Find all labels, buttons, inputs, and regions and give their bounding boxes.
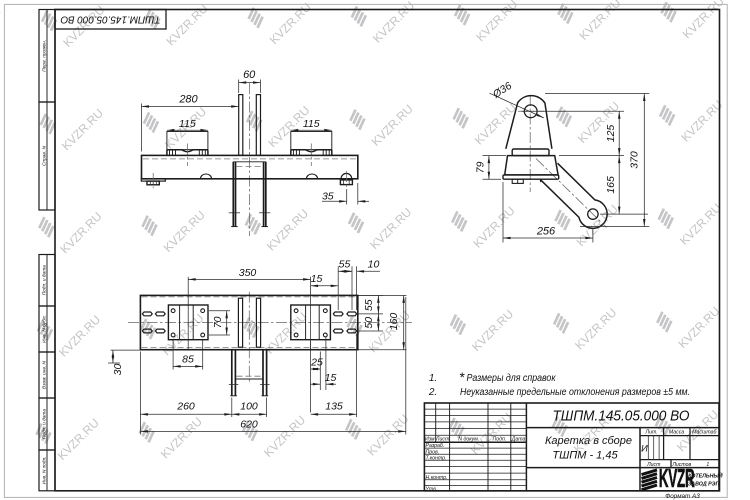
svg-text:KVZR.RU: KVZR.RU <box>0 107 3 154</box>
svg-text:100: 100 <box>240 401 258 413</box>
svg-text:256: 256 <box>536 225 556 237</box>
svg-text:85: 85 <box>182 354 194 366</box>
svg-text:115: 115 <box>179 118 196 130</box>
svg-text:50: 50 <box>363 317 375 329</box>
svg-text:KVZR.RU: KVZR.RU <box>0 4 4 51</box>
svg-text:KVZR.RU: KVZR.RU <box>370 0 417 46</box>
svg-text:260: 260 <box>176 401 195 413</box>
svg-text:KVZR.RU: KVZR.RU <box>264 206 311 253</box>
svg-text:KVZR.RU: KVZR.RU <box>56 312 103 359</box>
svg-text:370: 370 <box>629 151 641 169</box>
svg-text:KVZR.RU: KVZR.RU <box>0 211 1 258</box>
svg-text:ТШПМ.145.05.000 ВО: ТШПМ.145.05.000 ВО <box>60 14 160 25</box>
svg-text:KVZR.RU: KVZR.RU <box>473 0 520 44</box>
svg-text:15: 15 <box>325 372 337 384</box>
svg-text:15: 15 <box>311 273 323 285</box>
svg-text:Лист: Лист <box>435 437 450 443</box>
svg-text:Перв. примен.: Перв. примен. <box>41 40 47 72</box>
svg-text:350: 350 <box>239 267 257 279</box>
svg-text:ЗАВОД РЭП: ЗАВОД РЭП <box>688 481 720 487</box>
svg-text:Формат А3: Формат А3 <box>665 493 700 500</box>
svg-text:KVZR.RU: KVZR.RU <box>572 305 619 352</box>
svg-text:Инв. N подл.: Инв. N подл. <box>41 456 47 484</box>
svg-text:25: 25 <box>310 356 323 368</box>
svg-text:165: 165 <box>605 176 617 194</box>
svg-text:1: 1 <box>706 462 709 468</box>
svg-text:KVZR.RU: KVZR.RU <box>261 413 308 460</box>
svg-text:Утв.: Утв. <box>426 486 438 492</box>
svg-text:55: 55 <box>363 299 375 311</box>
svg-text:Неуказанные предельные отклоне: Неуказанные предельные отклонения размер… <box>460 387 690 398</box>
svg-text:KVZR.RU: KVZR.RU <box>161 208 208 255</box>
svg-text:KVZR.RU: KVZR.RU <box>267 0 314 47</box>
svg-text:Лит.: Лит. <box>645 430 658 436</box>
svg-text:KVZR.RU: KVZR.RU <box>469 307 516 354</box>
svg-text:1.: 1. <box>429 373 437 384</box>
svg-text:Размеры для справок: Размеры для справок <box>467 373 557 384</box>
svg-text:160: 160 <box>388 313 400 331</box>
svg-text:KVZR.RU: KVZR.RU <box>676 304 723 351</box>
svg-text:KVZR.RU: KVZR.RU <box>159 311 206 358</box>
svg-text:Взам. инв. N: Взам. инв. N <box>41 361 47 389</box>
svg-text:KVZR.RU: KVZR.RU <box>164 1 211 48</box>
svg-text:Н.контр.: Н.контр. <box>426 475 448 481</box>
svg-text:115: 115 <box>303 118 320 130</box>
svg-text:60: 60 <box>243 69 256 81</box>
svg-text:KVZR.RU: KVZR.RU <box>677 201 724 248</box>
svg-text:KVZR.RU: KVZR.RU <box>678 97 725 144</box>
svg-text:55: 55 <box>339 259 351 271</box>
svg-text:Подп.: Подп. <box>492 437 506 443</box>
svg-text:Изм: Изм <box>425 437 435 443</box>
svg-text:Масштаб: Масштаб <box>692 430 717 436</box>
svg-text:Подп. и дата: Подп. и дата <box>41 265 47 295</box>
svg-text:Разраб.: Разраб. <box>426 443 445 449</box>
svg-text:Подп. и дата: Подп. и дата <box>41 409 47 439</box>
svg-text:Инв. N дубл.: Инв. N дубл. <box>41 315 47 343</box>
svg-text:KVZR.RU: KVZR.RU <box>577 0 624 43</box>
svg-text:125: 125 <box>605 125 617 143</box>
svg-text:10: 10 <box>368 259 380 271</box>
svg-text:КОТЕЛЬНЫЙ: КОТЕЛЬНЫЙ <box>688 472 723 480</box>
svg-text:Ø36: Ø36 <box>490 80 514 102</box>
svg-text:KVZR.RU: KVZR.RU <box>470 204 517 251</box>
svg-text:KVZR.RU: KVZR.RU <box>369 102 416 149</box>
svg-text:KVZR.RU: KVZR.RU <box>574 202 621 249</box>
svg-text:Масса: Масса <box>669 430 684 436</box>
svg-text:70: 70 <box>212 316 224 328</box>
svg-text:79: 79 <box>474 161 486 173</box>
svg-text:Каретка в сборе: Каретка в сборе <box>545 435 632 447</box>
svg-text:30: 30 <box>112 364 124 376</box>
svg-text:Справ. N: Справ. N <box>41 145 47 166</box>
svg-text:KVZR.RU: KVZR.RU <box>55 416 102 463</box>
svg-text:2.: 2. <box>428 387 437 398</box>
svg-text:KVZR.RU: KVZR.RU <box>59 106 106 153</box>
svg-text:N докум.: N докум. <box>458 437 479 443</box>
svg-text:ТШПМ - 1,45: ТШПМ - 1,45 <box>552 449 618 461</box>
svg-text:KVZR.RU: KVZR.RU <box>364 411 411 458</box>
svg-text:280: 280 <box>178 94 198 106</box>
svg-text:620: 620 <box>240 418 258 430</box>
svg-text:KVZR.RU: KVZR.RU <box>58 209 105 256</box>
svg-text:Дата: Дата <box>511 437 526 443</box>
svg-text:KVZR.RU: KVZR.RU <box>367 205 414 252</box>
svg-text:KVZR.RU: KVZR.RU <box>468 410 515 457</box>
svg-text:KVZR.RU: KVZR.RU <box>158 414 205 461</box>
svg-text:135: 135 <box>325 401 343 413</box>
svg-text:*: * <box>459 370 465 385</box>
svg-text:И: И <box>641 444 648 454</box>
svg-text:ТШПМ.145.05.000 ВО: ТШПМ.145.05.000 ВО <box>553 408 690 425</box>
svg-text:Т.контр.: Т.контр. <box>426 455 447 461</box>
svg-text:35: 35 <box>322 190 334 202</box>
